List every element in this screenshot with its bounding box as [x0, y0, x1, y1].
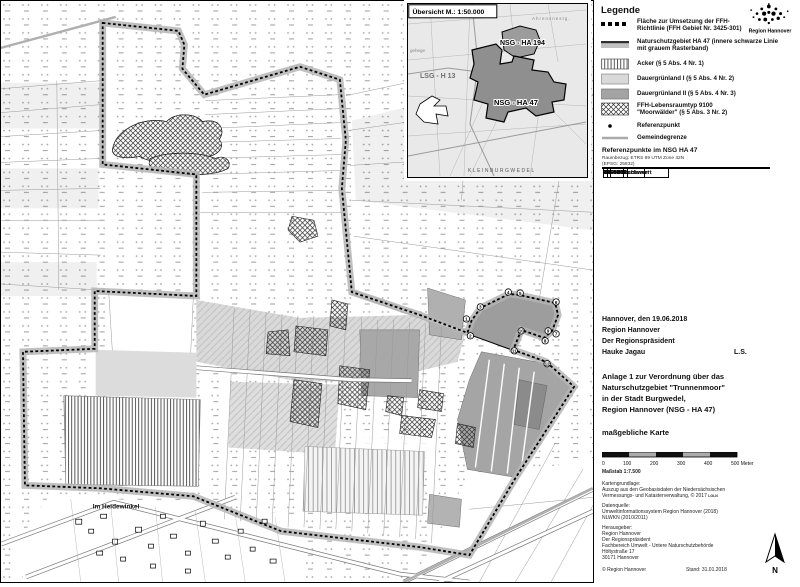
legend-label: Naturschutzgebiet HA 47 (innere schwarze… — [637, 38, 778, 45]
inset-ahrens-label: Ahrensnestg. — [532, 16, 571, 21]
credit-source-line2: NLWKN (2010/2011) — [602, 515, 648, 521]
scale-tick: 400 — [704, 461, 712, 467]
municipal-border-icon — [601, 133, 631, 143]
nsg-band-icon — [601, 38, 631, 50]
legend-label: Gemeindegrenze — [637, 134, 687, 141]
gruenland2-swatch-icon — [601, 88, 631, 100]
legend-title: Legende — [601, 5, 640, 16]
scale-tick: 0 — [602, 461, 605, 467]
settlement-label: Im Heidewinkel — [93, 503, 140, 510]
reference-point-table: Nr. Rechtswert Hochwert 15604895820538 2… — [602, 167, 770, 169]
scale-tick: 100 — [623, 461, 631, 467]
signature-role: Der Regionspräsident — [602, 338, 675, 345]
inset-town-label: KLEINBURGWEDEL — [468, 168, 536, 174]
moorwald-crosshatch-icon — [601, 102, 631, 116]
legend-panel: Legende Region Hannover Fläche zur Umset… — [598, 0, 800, 583]
doc-title-line: Anlage 1 zur Verordnung über das — [602, 372, 724, 381]
ref-point-label: 10 — [519, 329, 524, 334]
doc-title-line: Naturschutzgebiet "Trunnenmoor" — [602, 383, 725, 392]
legend-label: mit grauem Rasterband) — [637, 45, 708, 52]
region-hannover-logo-label: Region Hannover — [749, 28, 792, 34]
inset-nsg194-label: NSG - HA 194 — [500, 40, 545, 47]
north-arrow-icon: N — [760, 532, 790, 576]
region-hannover-logo: Region Hannover — [744, 3, 796, 29]
inset-gehege-label: gehege — [410, 48, 426, 53]
north-arrow-label: N — [772, 566, 778, 575]
scale-tick: 200 — [650, 461, 658, 467]
acker-hatch-icon — [601, 58, 631, 70]
gruenland1-swatch-icon — [601, 73, 631, 85]
cell: 5820646 — [603, 168, 628, 178]
lgln-logo: LGLN — [708, 494, 718, 498]
stand-note: Stand: 31.01.2018 — [686, 567, 727, 573]
doc-title-line: in der Stadt Burgwedel, — [602, 394, 686, 403]
ref-table-subtitle: Raumbezug: ETRS 89 UTM Zone 32N — [602, 156, 684, 161]
signature-ls: L.S. — [734, 349, 747, 356]
inset-nsg47-label: NSG - HA 47 — [494, 98, 538, 107]
legend-label: "Moorwälder" (§ 5 Abs. 3 Nr. 2) — [637, 109, 727, 116]
ref-point-label: 12 — [545, 362, 550, 367]
doc-title-emphasis: maßgebliche Karte — [602, 428, 669, 437]
legend-label: Dauergrünland I (§ 5 Abs. 4 Nr. 2) — [637, 75, 734, 82]
ref-point-label: 11 — [512, 349, 517, 354]
map-sheet: { "colors":{"grassland1":"#d9d9d9","gras… — [0, 0, 800, 583]
reference-point-icon — [601, 121, 631, 131]
legend-label: Fläche zur Umsetzung der FFH- — [637, 18, 730, 25]
legend-label: Dauergrünland II (§ 5 Abs. 4 Nr. 3) — [637, 90, 736, 97]
signature-name: Hauke Jagau — [602, 349, 645, 356]
region-hannover-logo-icon: Region Hannover — [744, 3, 796, 36]
signature-date: Hannover, den 19.06.2018 — [602, 316, 687, 323]
copyright-note: © Region Hannover — [602, 567, 646, 573]
doc-title-line: Region Hannover (NSG - HA 47) — [602, 405, 715, 414]
ffh-line-icon — [601, 18, 631, 30]
credit-base-text: Vermessungs- und Katasterverwaltung, © 2… — [602, 493, 707, 499]
ref-table-subtitle2: (EPSG: 25832) — [602, 162, 635, 167]
legend-label: Referenzpunkt — [637, 122, 680, 129]
signature-org: Region Hannover — [602, 327, 660, 334]
north-arrow: N — [760, 532, 790, 576]
legend-label: Acker (§ 5 Abs. 4 Nr. 1) — [637, 60, 704, 67]
credit-base-line2: Vermessungs- und Katasterverwaltung, © 2… — [602, 493, 718, 499]
inset-title: Übersicht M.: 1:50.000 — [413, 7, 485, 16]
scale-ratio: Maßstab 1:7.500 — [602, 469, 641, 475]
overview-inset: gehege Ahrensnestg. LSG - H 13 NSG - HA … — [407, 3, 588, 178]
scale-bar-graphic — [602, 452, 742, 459]
legend-label: FFH-Lebensraumtyp 9100 — [637, 102, 713, 109]
ref-table-title: Referenzpunkte im NSG HA 47 — [602, 147, 697, 154]
scale-tick: 300 — [677, 461, 685, 467]
inset-lsg-label: LSG - H 13 — [420, 73, 456, 80]
credit-pub-line: 30171 Hannover — [602, 555, 639, 561]
scale-tick-end: 500 Meter — [731, 461, 754, 467]
overview-inset-canvas: gehege Ahrensnestg. LSG - H 13 NSG - HA … — [408, 4, 586, 176]
legend-label: Richtlinie (FFH Gebiet Nr. 3425-301) — [637, 25, 742, 32]
